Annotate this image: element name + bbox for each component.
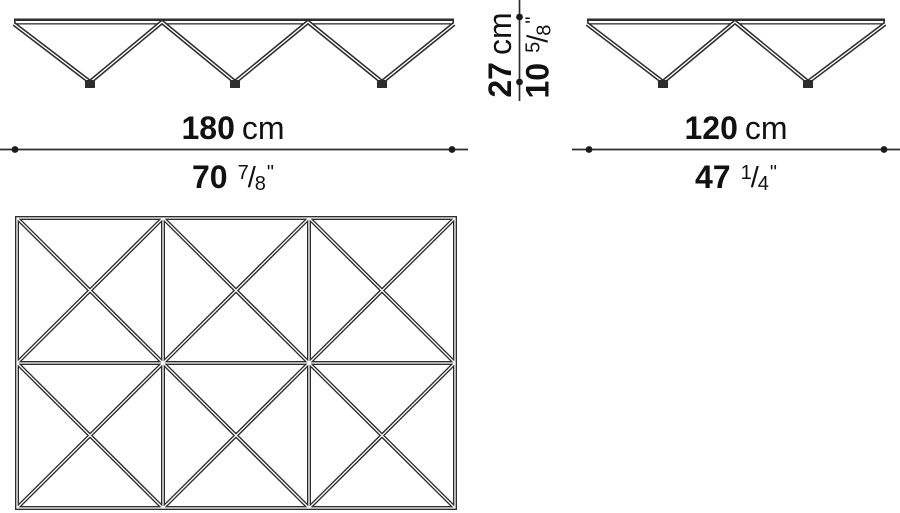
dimension-endpoint-dot	[12, 146, 19, 153]
dimension-sheet: 27cm 105/8" 180cm 707/8" 120cm 471/4"	[0, 0, 900, 513]
dimension-endpoint-dot	[449, 146, 456, 153]
front-feet	[85, 80, 387, 88]
front-width-imperial-label: 707/8"	[192, 156, 274, 201]
side-width-imperial-label: 471/4"	[695, 156, 777, 201]
front-elevation-drawing	[10, 14, 460, 94]
front-width-inch-fraction: 7/8"	[238, 159, 274, 195]
height-metric-label: 27cm	[483, 5, 517, 105]
front-width-inch-whole: 70	[192, 159, 228, 195]
dimension-endpoint-dot	[586, 146, 593, 153]
front-truss-legs	[14, 22, 454, 82]
side-truss-legs	[587, 22, 885, 82]
side-width-inch-fraction: 1/4"	[741, 159, 777, 195]
height-cm-value: 27	[482, 62, 518, 98]
side-width-inch-whole: 47	[695, 159, 731, 195]
side-elevation-drawing	[585, 14, 890, 94]
height-inch-whole: 10	[520, 63, 556, 99]
plan-top-view-drawing	[15, 216, 457, 512]
front-tabletop	[14, 19, 454, 25]
height-cm-unit: cm	[482, 12, 518, 55]
height-inch-fraction: 5/8"	[520, 17, 556, 53]
side-feet	[658, 80, 813, 88]
height-imperial-label: 105/8"	[517, 8, 562, 108]
dimension-endpoint-dot	[881, 146, 888, 153]
